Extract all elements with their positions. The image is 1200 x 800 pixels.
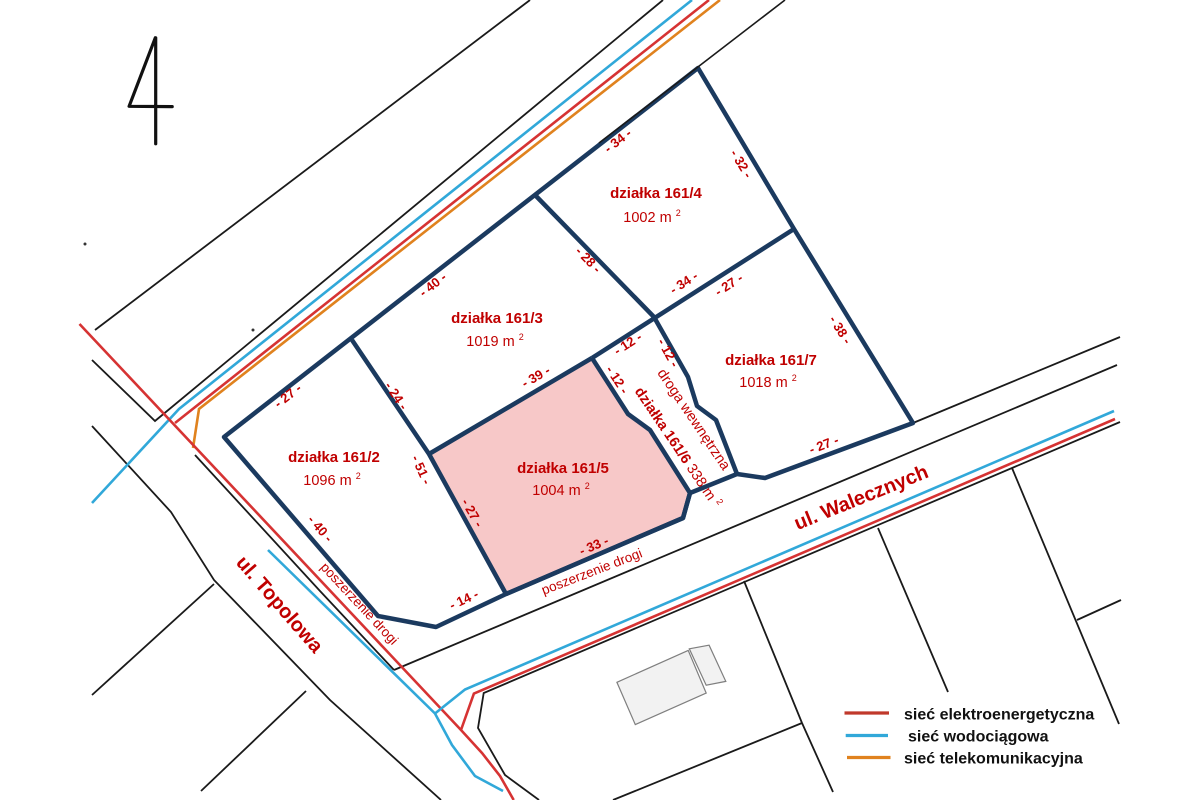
svg-text:działka 161/4: działka 161/4: [610, 185, 702, 202]
svg-text:sieć telekomunikacyjna: sieć telekomunikacyjna: [904, 751, 1083, 768]
svg-text:1019 m 2: 1019 m 2: [466, 332, 523, 350]
svg-text:sieć wodociągowa: sieć wodociągowa: [908, 729, 1049, 746]
svg-text:1018 m 2: 1018 m 2: [739, 373, 796, 391]
svg-text:1096 m 2: 1096 m 2: [303, 471, 360, 489]
svg-text:1002 m 2: 1002 m 2: [623, 208, 680, 226]
svg-text:1004 m 2: 1004 m 2: [532, 481, 589, 499]
svg-text:działka 161/5: działka 161/5: [517, 460, 609, 477]
svg-text:działka 161/2: działka 161/2: [288, 449, 380, 466]
svg-text:działka 161/7: działka 161/7: [725, 352, 817, 369]
svg-text:działka 161/3: działka 161/3: [451, 310, 543, 327]
svg-text:sieć elektroenergetyczna: sieć elektroenergetyczna: [904, 707, 1094, 724]
